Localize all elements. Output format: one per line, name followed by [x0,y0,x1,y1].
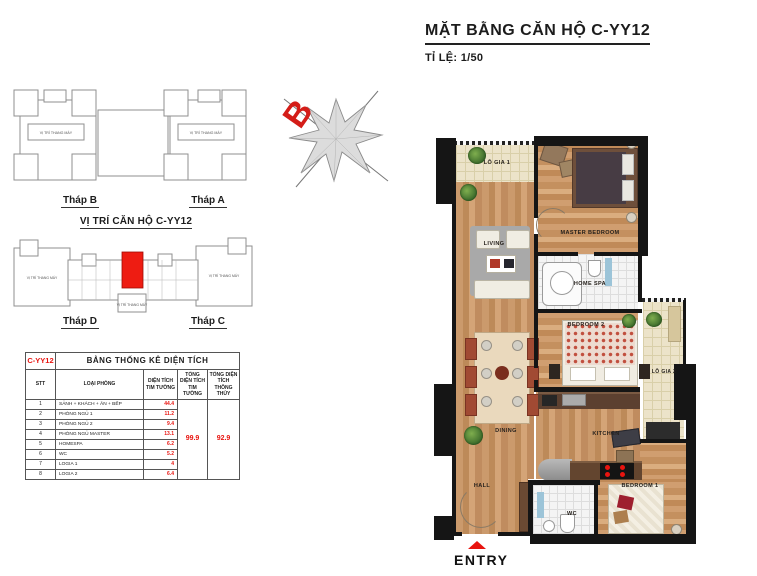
pillow [570,367,596,381]
tower-b-label: Tháp B [40,195,120,206]
wall-segment [594,480,598,536]
elevator-note-tower-a: VỊ TRÍ THANG MÁY [190,131,223,135]
cell-stt: 6 [26,450,56,460]
bed2-floral-blanket [565,323,635,365]
col-stt: STT [26,370,56,400]
table-centerpiece [495,366,509,380]
room-label-master-bedroom: MASTER BEDROOM [560,230,619,236]
shower-panel [537,492,544,518]
wall-segment [594,252,642,256]
total-thong-thuy: 92.9 [208,400,240,480]
tower-c-label: Tháp C [168,316,248,327]
towers-overview-diagram: VỊ TRÍ THANG MÁY VỊ TRÍ THANG MÁY [12,88,254,192]
burner [605,472,610,477]
cell-area: 13.1 [144,430,178,440]
cell-area: 9.4 [144,420,178,430]
desk-chair [616,450,634,463]
nightstand [639,364,650,379]
toilet [588,260,601,277]
place-setting [512,368,523,379]
highlighted-unit [122,252,143,288]
entry-label: ENTRY [454,552,508,568]
cell-stt: 5 [26,440,56,450]
wall-segment [434,516,454,540]
plant [646,312,662,327]
sofa [474,280,530,299]
north-label: B [276,93,321,135]
tower-a-label: Tháp A [168,195,248,206]
cell-area: 44.4 [144,400,178,410]
wc-sink [543,520,555,532]
cell-area: 11.2 [144,410,178,420]
burner [620,472,625,477]
tower-b-footprint [14,90,96,180]
pillow [604,367,630,381]
wall-segment [536,387,640,392]
wall-segment [452,138,456,536]
plant [464,426,483,445]
room-label-dining: DINING [495,428,517,434]
table-unit-code: C-YY12 [26,353,56,370]
bedroom1-upper-floor [640,443,688,481]
cell-area: 6.2 [144,440,178,450]
wall-segment [638,254,642,302]
coffee-table-tray [490,259,500,268]
elevator-note-tower-c: VỊ TRÍ THANG MÁY [209,274,240,278]
pillow [622,154,634,175]
cell-room: PHÒNG NGỦ 1 [56,410,144,420]
balcony-equipment [646,422,680,439]
room-label-living: LIVING [484,241,505,247]
wall-segment [498,532,532,536]
dining-chair [465,394,477,416]
wall-segment [538,309,642,313]
floorplan-sheet: { "header": { "title": "MẶT BẰNG CĂN HỘ … [0,0,757,576]
wall-segment [528,480,600,485]
cell-area: 6.4 [144,470,178,480]
room-label-bedroom1: BEDROOM 1 [622,483,659,489]
cell-stt: 2 [26,410,56,420]
pillow-red [617,495,634,511]
dining-chair [465,338,477,360]
wall-segment [640,439,686,443]
location-title: VỊ TRÍ CĂN HỘ C-YY12 [36,216,236,227]
place-setting [512,340,523,351]
nightstand [549,364,560,379]
elevator-note-tower-b: VỊ TRÍ THANG MÁY [40,131,73,135]
kitchen-island-end [538,459,572,481]
place-setting [481,340,492,351]
tower-d-label: Tháp D [40,316,120,327]
elevator-note-center: VỊ TRÍ THANG MÁY [117,303,148,307]
kitchen-appliance [542,395,557,406]
wall-segment [434,384,454,456]
place-setting [481,368,492,379]
logia1-railing [454,141,540,145]
wall-segment [528,480,533,536]
cell-room: PHÒNG NGỦ 2 [56,420,144,430]
cell-room: LOGIA 2 [56,470,144,480]
room-label-hall: HALL [474,483,490,489]
table-title: BẢNG THỐNG KÊ DIỆN TÍCH [56,353,240,370]
master-bed-mattress [576,152,626,204]
cell-room: HOMESPA [56,440,144,450]
master-door-arc [536,208,570,242]
elevator-note-tower-d: VỊ TRÍ THANG MÁY [27,276,58,280]
wall-segment [452,532,462,536]
place-setting [512,396,523,407]
wall-segment [534,146,538,218]
wall-segment [534,136,648,146]
pillow-tan [613,510,629,524]
cell-area: 5.2 [144,450,178,460]
armchair [506,230,530,249]
col-total-th: TỔNG DIỆN TÍCH THÔNG THỦY [208,370,240,400]
room-label-home-spa: HOME SPA [574,281,606,287]
room-label-bedroom2: BEDROOM 2 [568,322,605,328]
wall-segment [534,256,538,368]
dining-chair [465,366,477,388]
apartment-floorplan: LÔ GIA 1 LIVING MASTER BEDROOM HOME SPA … [424,134,757,576]
cell-stt: 8 [26,470,56,480]
cell-area: 4 [144,460,178,470]
cell-room: LOGIA 1 [56,460,144,470]
towers-podium [98,110,168,176]
plant [622,314,636,328]
scale-label: TỈ LỆ: 1/50 [425,52,483,64]
kitchen-sink [562,394,586,406]
entry-door-arc [460,486,502,528]
cell-room: PHÒNG NGỦ MASTER [56,430,144,440]
col-total-tt: TỔNG DIỆN TÍCH TIM TƯỜNG [178,370,208,400]
coffee-table-book [504,259,514,268]
balcony-bench [668,306,681,342]
wall-segment [686,418,696,540]
table-row: 1 SẢNH + KHÁCH + ĂN + BẾP 44.4 99.9 92.9 [26,400,240,410]
cell-stt: 1 [26,400,56,410]
area-statistics-table: C-YY12 BẢNG THỐNG KÊ DIỆN TÍCH STT LOẠI … [25,352,240,480]
cell-stt: 3 [26,420,56,430]
spa-tub-basin [550,271,574,295]
page-title: MẶT BẰNG CĂN HỘ C-YY12 [425,22,650,45]
room-label-logia1: LÔ GIA 1 [484,160,511,166]
col-area: DIỆN TÍCH TIM TƯỜNG [144,370,178,400]
entry-arrow [468,541,486,549]
cell-stt: 4 [26,430,56,440]
wall-segment [674,364,696,420]
wall-segment [530,534,696,544]
pillow [622,180,634,201]
location-diagram: VỊ TRÍ THANG MÁY VỊ TRÍ THANG MÁY VỊ TRÍ… [12,232,254,314]
place-setting [481,396,492,407]
burner [605,465,610,470]
tower-a-footprint [164,90,246,180]
room-label-wc: WC [567,511,577,517]
bed1 [608,484,664,534]
cell-room: SẢNH + KHÁCH + ĂN + BẾP [56,400,144,410]
compass-rose: B [268,75,408,197]
total-tim-tuong: 99.9 [178,400,208,480]
room-label-kitchen: KITCHEN [592,431,619,437]
logia2-railing [642,298,686,302]
room-label-logia2: LÔ GIA 2 [652,369,676,375]
wall-segment [538,252,578,256]
plant [460,184,477,201]
cell-room: WC [56,450,144,460]
nightstand [626,212,637,223]
cell-stt: 7 [26,460,56,470]
burner [620,465,625,470]
wall-segment [638,136,648,256]
col-room: LOẠI PHÒNG [56,370,144,400]
